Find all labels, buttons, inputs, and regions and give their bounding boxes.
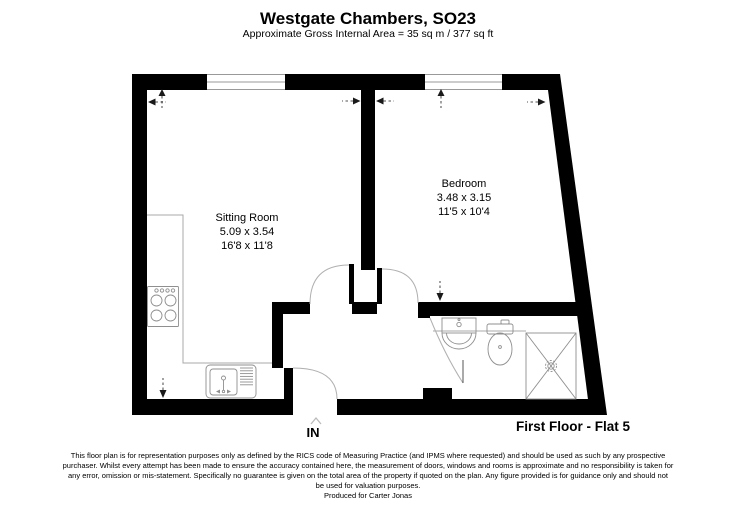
entry-direction-icon	[311, 418, 321, 424]
disclaimer-line: any error, omission or mis-statement. Sp…	[0, 471, 736, 481]
wall-bottom-1	[132, 399, 293, 415]
window-bedroom	[425, 75, 502, 90]
dim-arrow-down-sitting	[160, 378, 167, 398]
bedroom-imperial: 11'5 x 10'4	[399, 205, 529, 219]
disclaimer-line: This floor plan is for representation pu…	[0, 451, 736, 461]
wall-left	[132, 74, 147, 415]
wall-right-slanted	[546, 74, 607, 415]
disclaimer-line: purchaser. Whilst every attempt has been…	[0, 461, 736, 471]
floorplan-drawing	[0, 0, 736, 520]
wall-top-2	[285, 74, 425, 90]
bedroom-name: Bedroom	[399, 177, 529, 191]
kitchen-sink-icon	[206, 365, 256, 398]
shower-icon	[526, 333, 576, 399]
dim-arrow-right-sitting	[342, 98, 361, 105]
dim-arrow-right-bedroom	[527, 99, 546, 106]
sitting-room-label: Sitting Room 5.09 x 3.54 16'8 x 11'8	[182, 211, 312, 253]
sitting-door-arc	[310, 265, 349, 304]
floorplan-page: Westgate Chambers, SO23 Approximate Gros…	[0, 0, 736, 520]
sitting-room-name: Sitting Room	[182, 211, 312, 225]
wall-bottom-2	[337, 399, 603, 415]
bedroom-label: Bedroom 3.48 x 3.15 11'5 x 10'4	[399, 177, 529, 219]
toilet-icon	[487, 320, 513, 365]
sitting-room-imperial: 16'8 x 11'8	[182, 239, 312, 253]
wall-hall-stub	[352, 302, 377, 314]
dim-arrow-down-bedroom	[437, 281, 444, 301]
door-leaf-sitting	[349, 264, 354, 304]
sitting-room-metric: 5.09 x 3.54	[182, 225, 312, 239]
door-leaf-bedroom	[377, 268, 382, 304]
entrance-label: IN	[285, 425, 341, 440]
hob-icon	[148, 287, 179, 327]
dim-arrow-up-bedroom	[438, 89, 445, 108]
dim-arrow-left-bedroom	[376, 98, 394, 105]
produced-by: Produced for Carter Jonas	[0, 491, 736, 501]
window-sitting-room	[207, 75, 285, 90]
bathroom-door-arc	[430, 318, 463, 383]
wall-bathroom-top	[418, 302, 580, 316]
entry-door-arc	[293, 368, 337, 399]
dim-arrow-up-sitting	[159, 89, 166, 108]
wall-room-divider	[361, 89, 375, 270]
wall-bathroom-left-stub	[418, 302, 430, 318]
disclaimer: This floor plan is for representation pu…	[0, 451, 736, 501]
dim-arrow-left-sitting	[148, 99, 166, 106]
basin-icon	[442, 318, 476, 349]
wall-bathroom-jamb	[423, 388, 452, 399]
floor-label: First Floor - Flat 5	[390, 419, 630, 434]
disclaimer-line: be used for valuation purposes.	[0, 481, 736, 491]
wall-sitting-se	[272, 302, 283, 368]
bedroom-door-arc	[382, 269, 418, 303]
door-leaf-entry	[284, 368, 293, 399]
bedroom-metric: 3.48 x 3.15	[399, 191, 529, 205]
wall-top-3	[502, 74, 554, 90]
